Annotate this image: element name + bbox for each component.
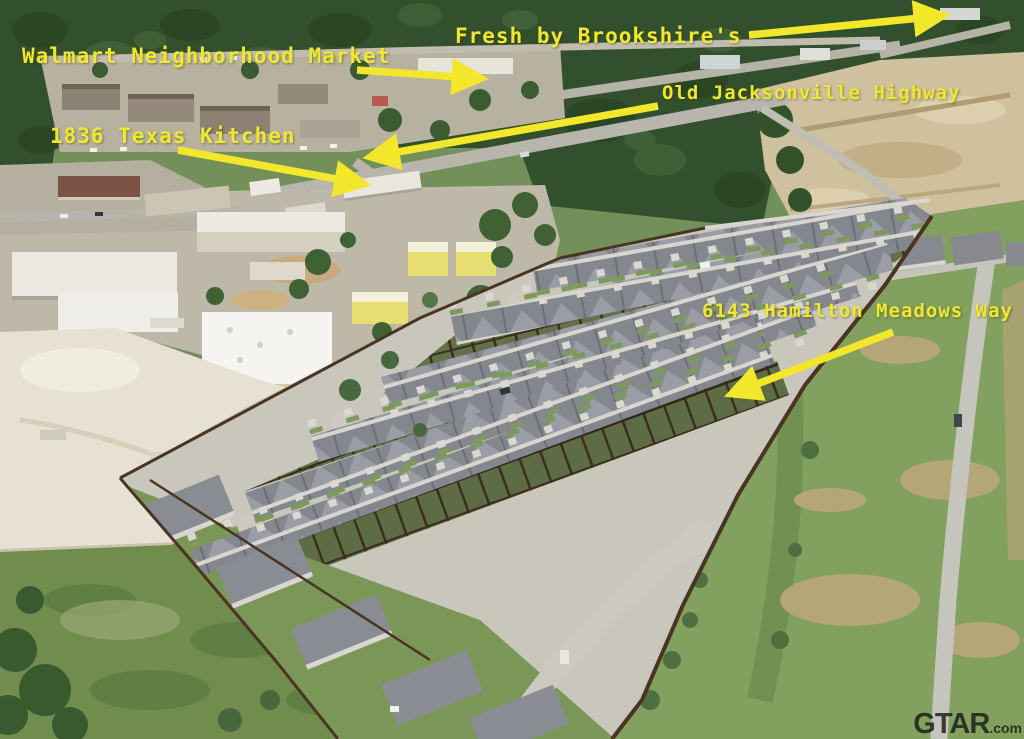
annotation-fresh-by-brookshires: Fresh by Brookshire's xyxy=(455,24,742,48)
aerial-photo: Fresh by Brookshire's Walmart Neighborho… xyxy=(0,0,1024,739)
annotation-1836-texas-kitchen: 1836 Texas Kitchen xyxy=(50,124,296,148)
aerial-scene xyxy=(0,0,1024,739)
watermark-suffix: .com xyxy=(989,720,1022,736)
watermark-brand: GTAR xyxy=(913,708,989,739)
annotation-walmart-neighborhood-market: Walmart Neighborhood Market xyxy=(22,44,390,68)
annotation-6143-hamilton-meadows-way: 6143 Hamilton Meadows Way xyxy=(702,300,1013,322)
annotation-old-jacksonville-highway: Old Jacksonville Highway xyxy=(662,82,961,104)
watermark-gtar: GTAR.com xyxy=(913,710,1022,739)
